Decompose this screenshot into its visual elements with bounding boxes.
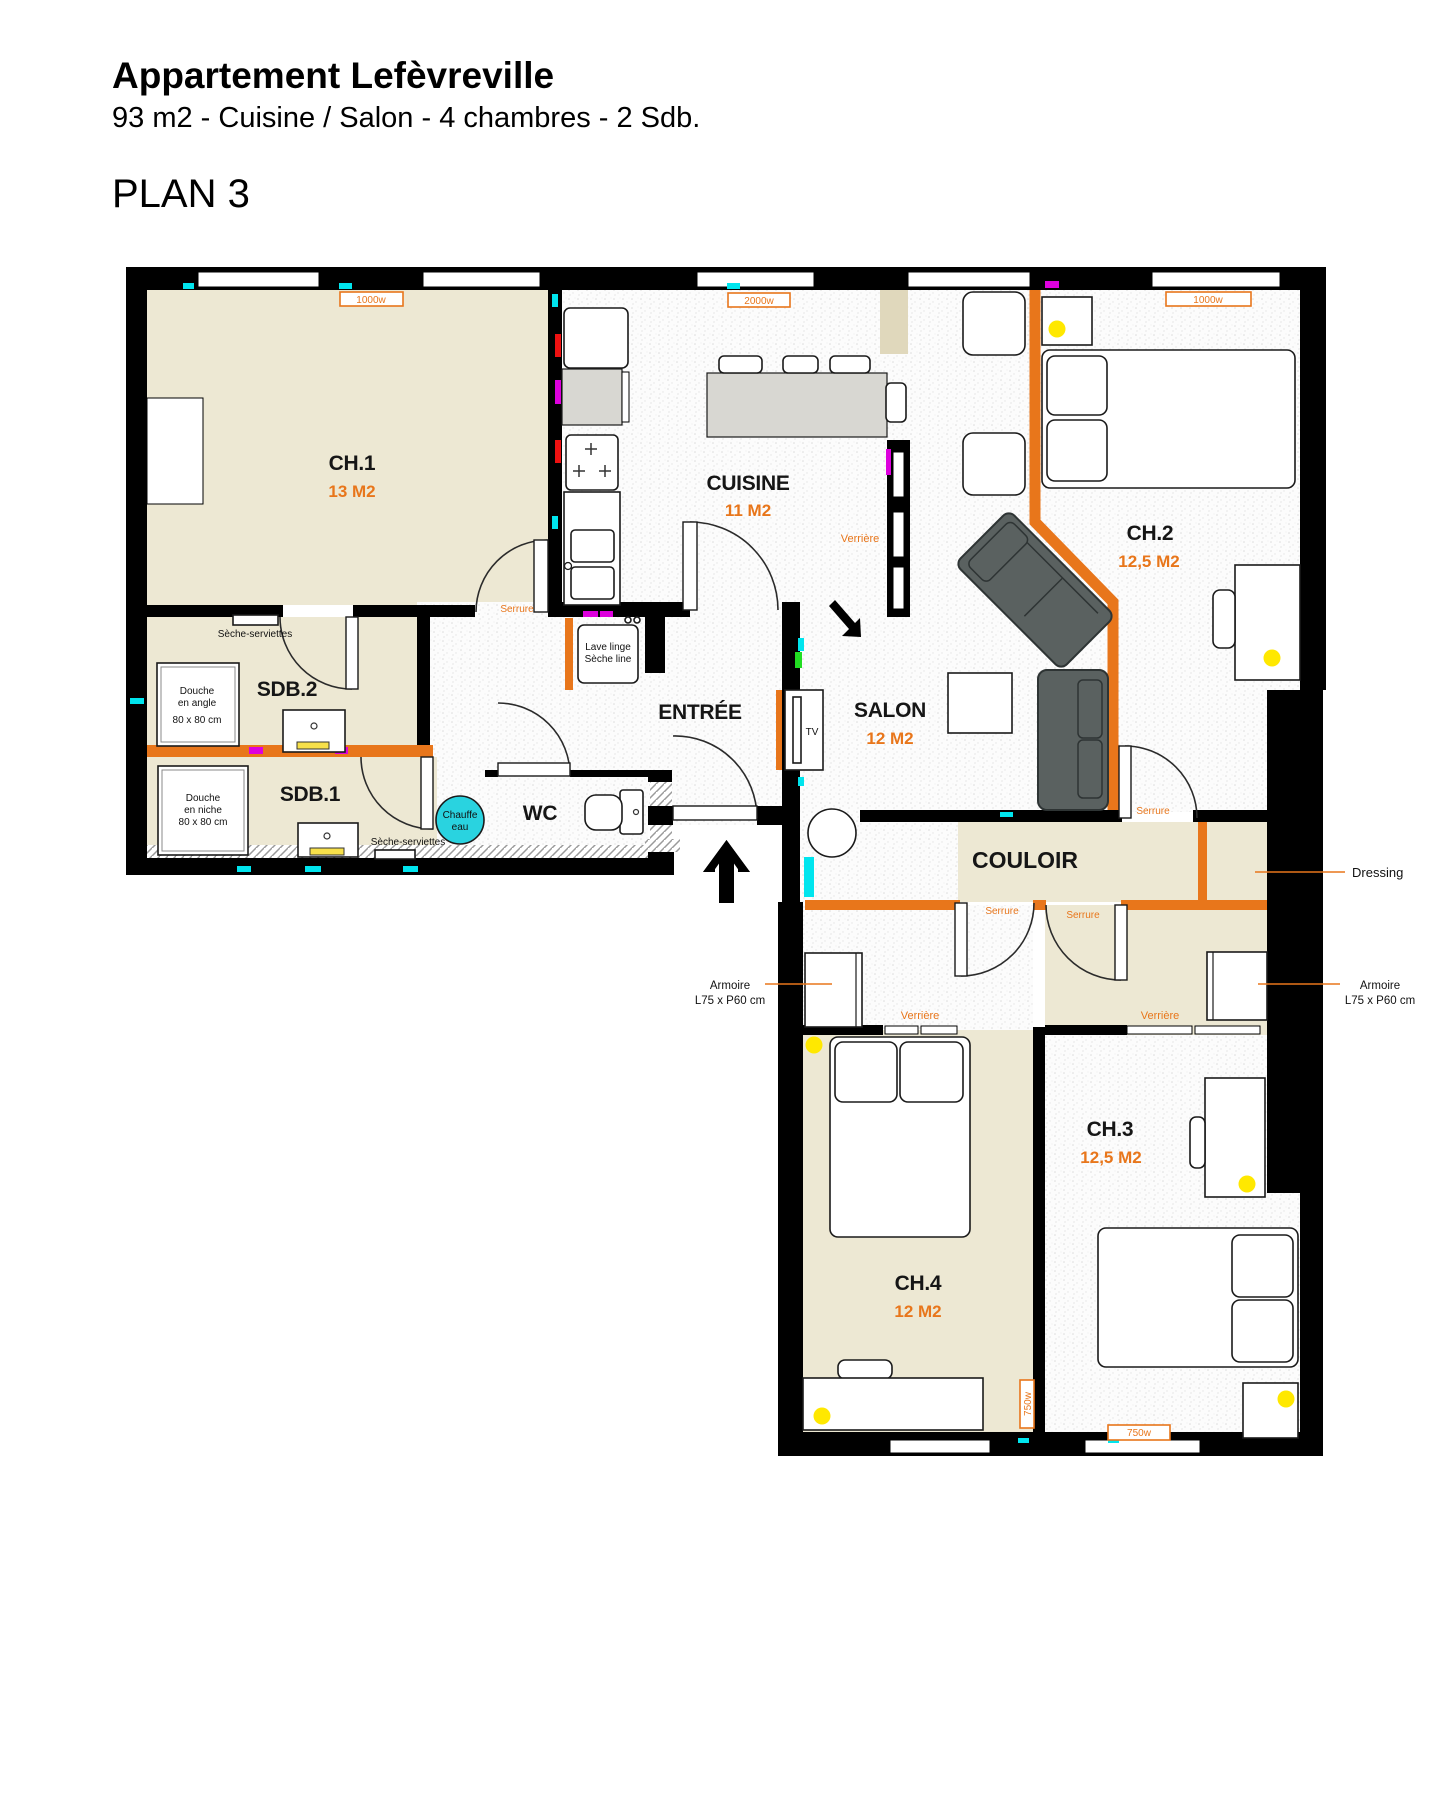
partition-dressing	[1198, 822, 1207, 902]
wall-west-lower	[778, 902, 803, 1456]
label-ch2: CH.2	[1127, 522, 1174, 545]
verriere-pane-ch3-2	[1195, 1026, 1260, 1034]
ch4-chair	[838, 1360, 892, 1379]
sink-basin-1	[571, 530, 614, 562]
entrance-arrow	[703, 840, 750, 903]
partition-couloir-south-e	[1121, 900, 1267, 910]
fridge	[564, 308, 628, 368]
dressing-label: Dressing	[1352, 865, 1403, 880]
label-ch3: CH.3	[1087, 1118, 1134, 1141]
verriere-cuisine: Verrière	[841, 533, 880, 545]
toilet-bowl	[585, 795, 622, 830]
douche-niche-l3: 80 x 80 cm	[179, 817, 228, 828]
wall-ch4-ch3	[1033, 1027, 1045, 1438]
armoire-right-l1: Armoire	[1360, 980, 1400, 992]
serrure-ch3: Serrure	[1066, 910, 1100, 921]
wall-niche	[645, 612, 665, 673]
label-ch2-area: 12,5 M2	[1118, 552, 1179, 571]
door-leaf-ch4	[955, 903, 967, 976]
ch2-chair	[1213, 590, 1235, 648]
sdb2-towel-radiator	[233, 615, 278, 625]
tv-label: TV	[806, 727, 819, 738]
wall-couloir-north-e	[1193, 810, 1267, 822]
tv-screen	[793, 697, 801, 763]
floor-ch1	[147, 289, 548, 605]
door-leaf-ch2	[1119, 746, 1131, 818]
partition-couloir-south-m	[1033, 900, 1046, 910]
verriere-ch4: Verrière	[901, 1010, 940, 1022]
window-ch2	[1152, 272, 1280, 287]
window-ch1-1	[198, 272, 319, 287]
verriere-pane-ch4-1	[885, 1026, 918, 1034]
wall-sdb-bottom	[126, 858, 672, 875]
sdb2-soap	[297, 742, 329, 749]
label-salon-area: 12 M2	[866, 729, 913, 748]
kitchen-counter-edge	[622, 372, 629, 422]
salon-coffee-table	[948, 673, 1012, 733]
wall-right-block	[1267, 690, 1323, 1193]
kitchen-counter	[562, 369, 622, 425]
douche-niche-l2: en niche	[184, 805, 222, 816]
label-cuisine: CUISINE	[706, 472, 789, 495]
douche-angle-l3: 80 x 80 cm	[173, 715, 222, 726]
verriere-pane-3	[893, 567, 904, 609]
salon-armchair-2	[963, 433, 1025, 495]
page-subtitle: 93 m2 - Cuisine / Salon - 4 chambres - 2…	[112, 102, 700, 134]
ch2-pillow-2	[1047, 420, 1107, 481]
radiator-ch1-label: 1000w	[356, 295, 386, 306]
window-ch1-2	[423, 272, 540, 287]
wall-wc-north-w	[485, 770, 498, 777]
stool-3	[830, 356, 870, 373]
window-ch4	[890, 1440, 990, 1453]
label-couloir: COULOIR	[972, 847, 1078, 873]
ch3-nightstand	[1243, 1383, 1298, 1438]
kitchen-island	[707, 373, 887, 437]
chauffe-eau-l1: Chauffe	[443, 810, 478, 821]
label-ch4-area: 12 M2	[894, 1302, 941, 1321]
door-leaf-front	[673, 806, 757, 820]
wall-wc-north-e	[570, 770, 648, 777]
radiator-ch2-label: 1000w	[1193, 295, 1223, 306]
toilet-tank	[620, 790, 643, 834]
door-leaf-sdb2	[346, 617, 358, 689]
ch4-pillow-1	[835, 1042, 897, 1102]
wall-left-sdb	[126, 617, 147, 875]
label-salon: SALON	[854, 699, 926, 722]
label-sdb2: SDB.2	[257, 678, 317, 701]
radiator-ch4-label: 750w	[1023, 1391, 1034, 1416]
chauffe-eau-l2: eau	[452, 822, 469, 833]
door-leaf-ch1	[534, 540, 548, 612]
douche-niche-l1: Douche	[186, 793, 221, 804]
armoire-left-l1: Armoire	[710, 980, 750, 992]
ch3-wardrobe	[1207, 952, 1267, 1020]
label-entree: ENTRÉE	[658, 701, 742, 724]
verriere-pane-2	[893, 512, 904, 557]
wall-wc-east-top	[648, 770, 672, 782]
ch4-pillow-2	[900, 1042, 963, 1102]
wall-couloir-north-w	[860, 810, 1122, 822]
ch3-pillow-1	[1232, 1235, 1293, 1297]
ch3-desk	[1205, 1078, 1265, 1197]
plan-label: PLAN 3	[112, 172, 250, 216]
label-ch4: CH.4	[895, 1272, 942, 1295]
label-ch3-area: 12,5 M2	[1080, 1148, 1141, 1167]
label-cuisine-area: 11 M2	[725, 501, 771, 520]
sink-basin-2	[571, 567, 614, 599]
sdb1-soap	[310, 848, 344, 855]
ch4-desk	[803, 1378, 983, 1430]
radiator-ch3-label: 750w	[1127, 1428, 1152, 1439]
label-sdb1: SDB.1	[280, 783, 341, 806]
stool-2	[783, 356, 818, 373]
verriere-pane-1	[893, 452, 904, 497]
washer-knob-2	[634, 617, 640, 623]
lave-linge-l1: Lave linge	[585, 642, 631, 653]
douche-angle-l2: en angle	[178, 698, 217, 709]
washer-knob-1	[625, 617, 631, 623]
door-leaf-cuisine	[683, 522, 697, 610]
wall-right-lower	[1300, 1193, 1323, 1456]
label-ch1: CH.1	[329, 452, 376, 475]
door-leaf-sdb1	[421, 757, 433, 829]
ch2-lamp	[1049, 321, 1066, 338]
window-ch3	[1085, 1440, 1200, 1453]
verriere-pane-ch3-1	[1127, 1026, 1192, 1034]
wall-left-upper	[126, 267, 147, 617]
door-leaf-wc	[498, 763, 570, 776]
label-ch1-area: 13 M2	[328, 482, 375, 501]
ch2-nightstand	[1042, 297, 1092, 345]
radiator-cuisine-label: 2000w	[744, 296, 774, 307]
stove	[566, 435, 618, 490]
window-cuisine	[697, 272, 814, 287]
armoire-left-l2: L75 x P60 cm	[695, 995, 765, 1007]
ch3-pillow-2	[1232, 1300, 1293, 1362]
sdb1-towel-radiator	[375, 850, 415, 859]
wall-sdb2-east	[417, 617, 430, 745]
salon-round-table	[808, 809, 856, 857]
duct	[880, 290, 908, 354]
wall-ch1-bottom-m	[353, 605, 475, 617]
ch4-wardrobe	[805, 953, 862, 1027]
partition-entree	[565, 618, 573, 690]
partition-couloir-south-w	[805, 900, 960, 910]
window-salon-upper	[908, 272, 1030, 287]
wall-wc-east-bot	[648, 852, 674, 875]
stool-4	[886, 383, 906, 422]
floor-plan-page: Appartement Lefèvreville 93 m2 - Cuisine…	[0, 0, 1456, 1796]
verriere-ch3: Verrière	[1141, 1010, 1180, 1022]
serrure-ch2: Serrure	[1136, 806, 1170, 817]
partition-tv-wall	[776, 690, 782, 770]
armoire-right-l2: L75 x P60 cm	[1345, 995, 1415, 1007]
seche-serviettes-sdb1: Sèche-serviettes	[371, 837, 445, 848]
label-wc: WC	[523, 802, 558, 825]
ch3-desk-lamp	[1239, 1176, 1256, 1193]
wall-entree-south-e	[757, 806, 800, 825]
sink-faucet	[565, 563, 572, 570]
floor-plan-canvas: Appartement Lefèvreville 93 m2 - Cuisine…	[0, 0, 1456, 1796]
page-title: Appartement Lefèvreville	[112, 55, 554, 96]
stool-1	[719, 356, 762, 373]
ch3-chair	[1190, 1117, 1205, 1168]
serrure-ch4: Serrure	[985, 906, 1019, 917]
ch2-pillow-1	[1047, 356, 1107, 415]
douche-angle-l1: Douche	[180, 686, 215, 697]
hatch-strip-wc2	[645, 839, 680, 852]
ch4-desk-lamp	[814, 1408, 831, 1425]
verriere-pane-ch4-2	[921, 1026, 957, 1034]
radiator-niche-ch1	[147, 398, 203, 504]
ch3-lamp	[1278, 1391, 1295, 1408]
salon-armchair-1	[963, 292, 1025, 355]
wall-bottom	[778, 1432, 1323, 1456]
wall-entree-south-w	[648, 806, 673, 825]
wall-right-upper	[1300, 267, 1326, 690]
ch2-desk-lamp	[1264, 650, 1281, 667]
door-leaf-ch3	[1115, 905, 1127, 980]
serrure-ch1: Serrure	[500, 604, 534, 615]
lave-linge-l2: Sèche line	[585, 654, 632, 665]
seche-serviettes-sdb2: Sèche-serviettes	[218, 629, 292, 640]
ch4-lamp	[806, 1037, 823, 1054]
wall-verriere-ch3-w	[1045, 1025, 1127, 1035]
